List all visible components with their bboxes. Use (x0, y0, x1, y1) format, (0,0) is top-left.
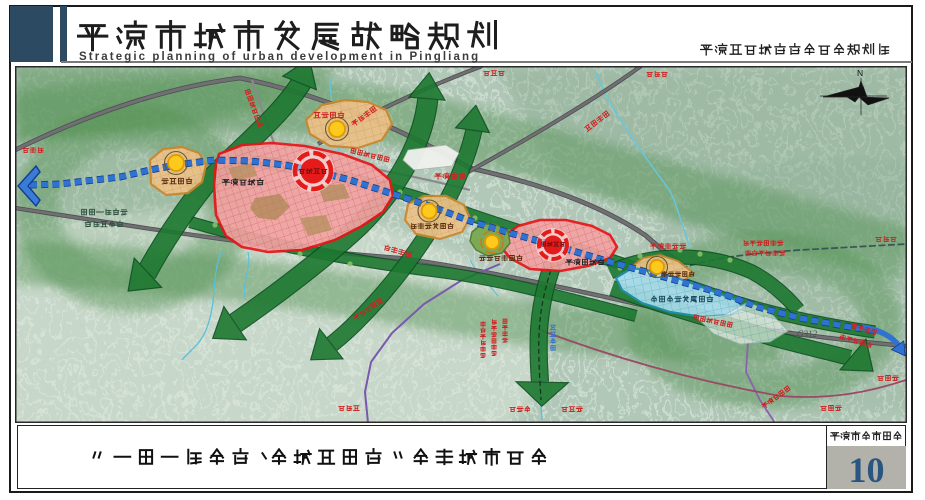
svg-text:G312: G312 (797, 329, 817, 339)
svg-text:N: N (857, 68, 863, 78)
